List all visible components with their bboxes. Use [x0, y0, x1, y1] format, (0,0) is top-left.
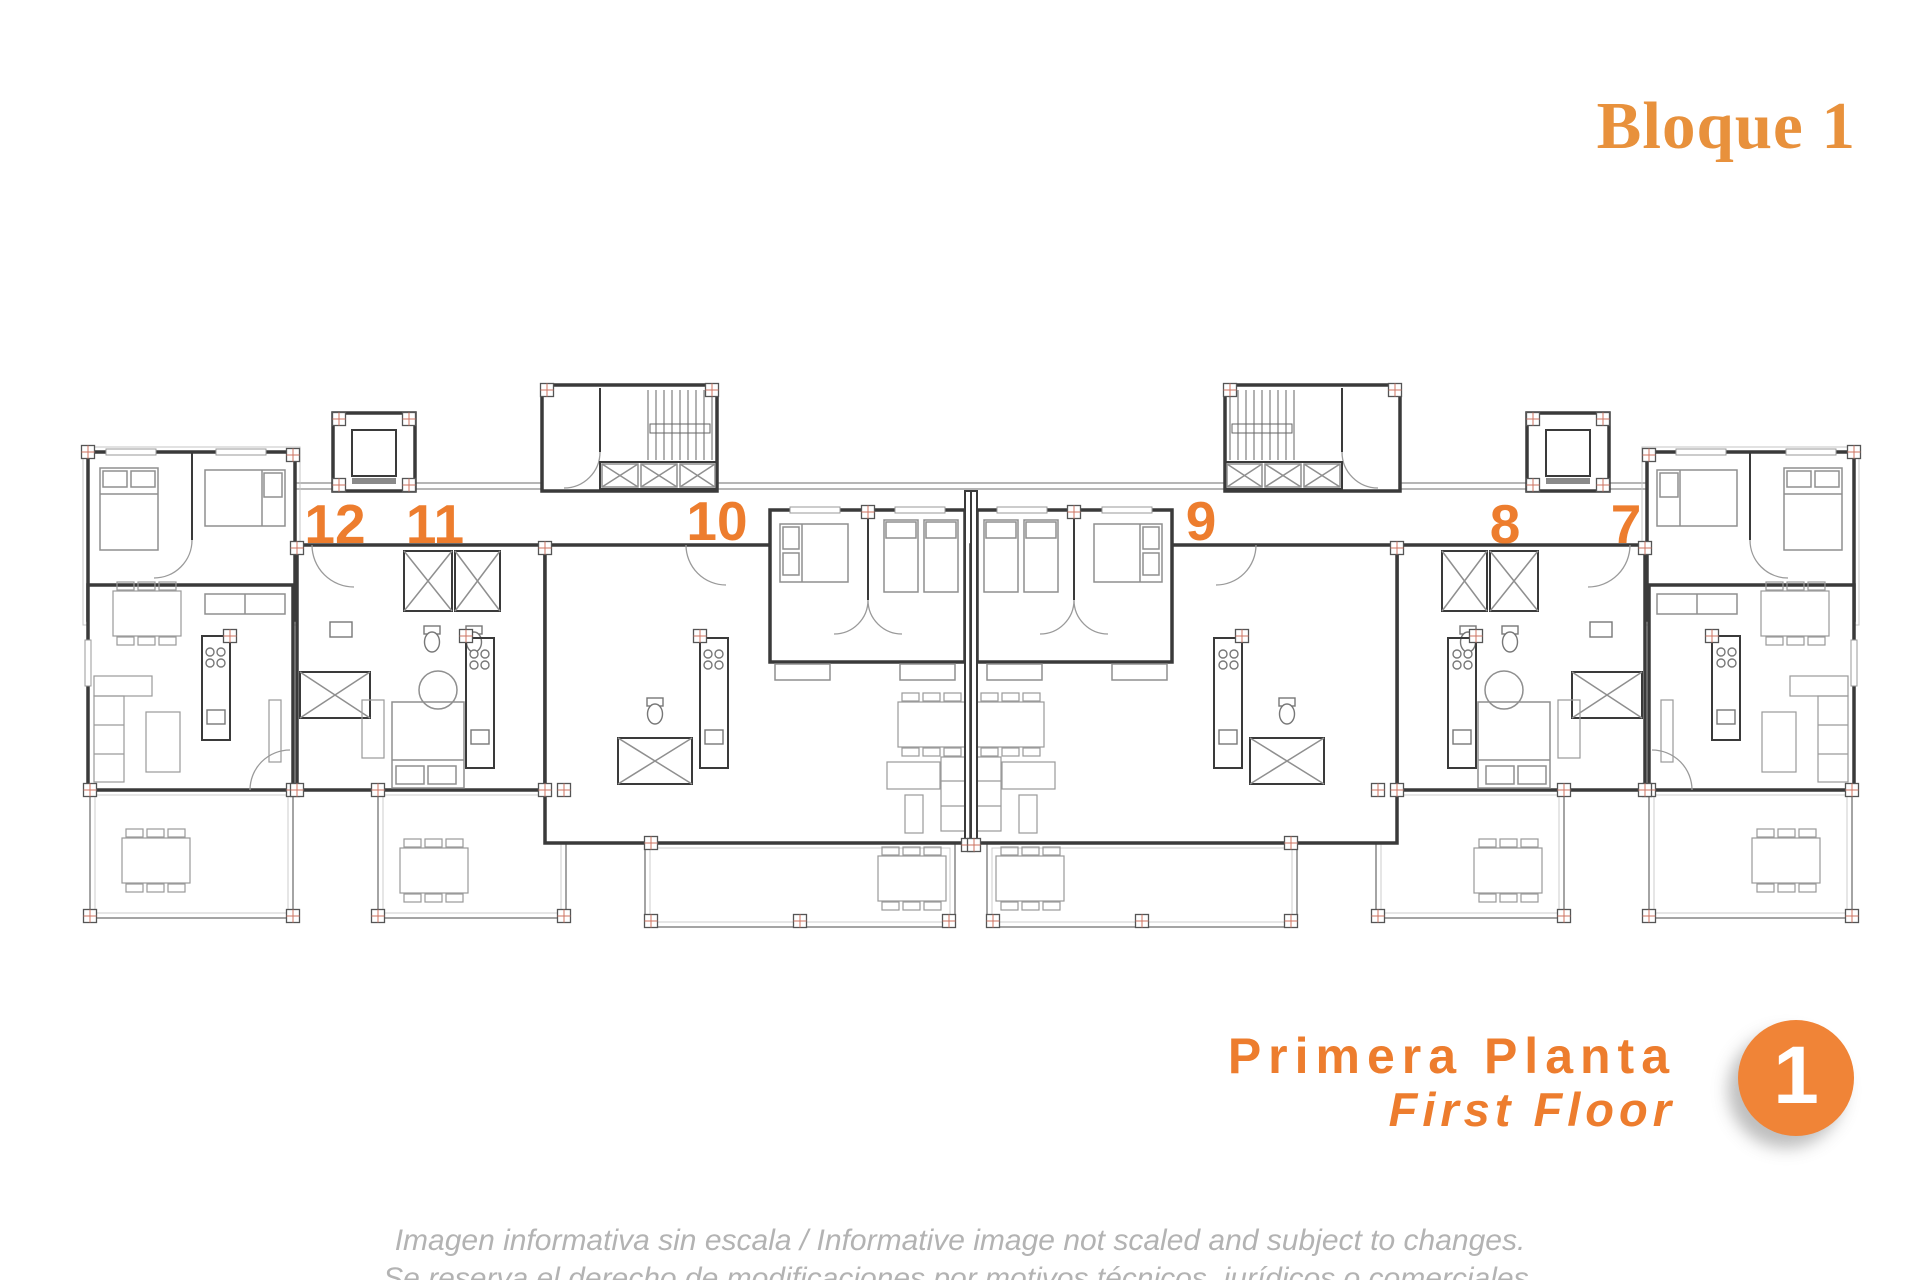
unit-number-9: 9	[1186, 494, 1217, 549]
floor-label: Primera Planta First Floor	[1228, 1030, 1676, 1136]
unit-number-10: 10	[686, 494, 747, 549]
plan-left-half	[82, 384, 975, 928]
unit-number-11: 11	[406, 497, 464, 552]
unit-number-12: 12	[304, 497, 365, 552]
disclaimer: Imagen informativa sin escala / Informat…	[0, 1222, 1920, 1280]
plan-right-half-mirror	[968, 384, 1861, 928]
floor-badge-number: 1	[1773, 1035, 1819, 1117]
unit-number-8: 8	[1490, 497, 1521, 552]
disclaimer-line-2: Se reserva el derecho de modificaciones …	[0, 1260, 1920, 1280]
floor-name-english: First Floor	[1228, 1084, 1676, 1136]
page: 121110987 Bloque 1 Primera Planta First …	[0, 0, 1920, 1280]
floor-badge: 1	[1738, 1020, 1854, 1136]
unit-number-7: 7	[1611, 497, 1642, 552]
floor-name-spanish: Primera Planta	[1228, 1030, 1676, 1082]
disclaimer-line-1: Imagen informativa sin escala / Informat…	[0, 1222, 1920, 1260]
page-title: Bloque 1	[1597, 88, 1856, 165]
